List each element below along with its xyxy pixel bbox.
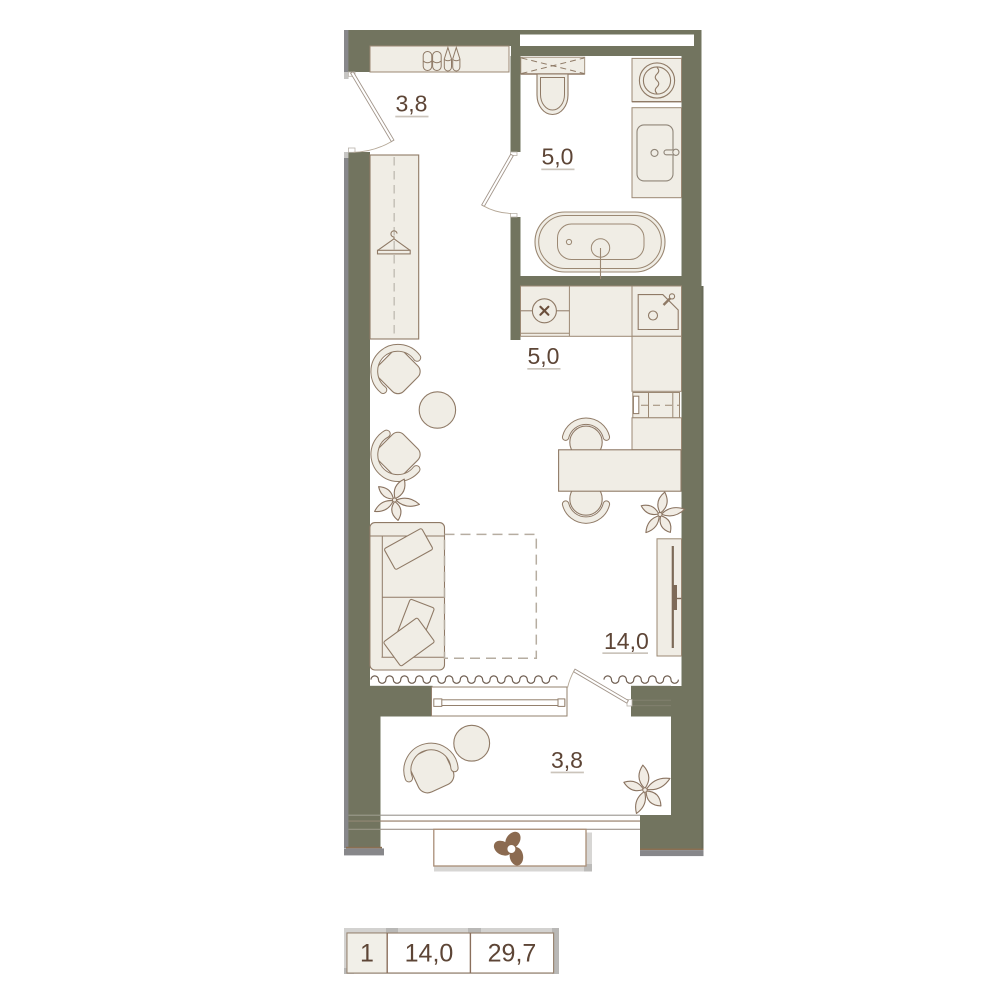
svg-text:5,0: 5,0	[528, 343, 560, 369]
svg-text:5,0: 5,0	[542, 143, 574, 169]
svg-text:3,8: 3,8	[551, 747, 583, 773]
svg-text:3,8: 3,8	[396, 90, 428, 116]
svg-text:29,7: 29,7	[488, 940, 537, 968]
svg-text:1: 1	[360, 940, 374, 968]
svg-text:14,0: 14,0	[405, 940, 454, 968]
svg-text:14,0: 14,0	[604, 628, 649, 654]
